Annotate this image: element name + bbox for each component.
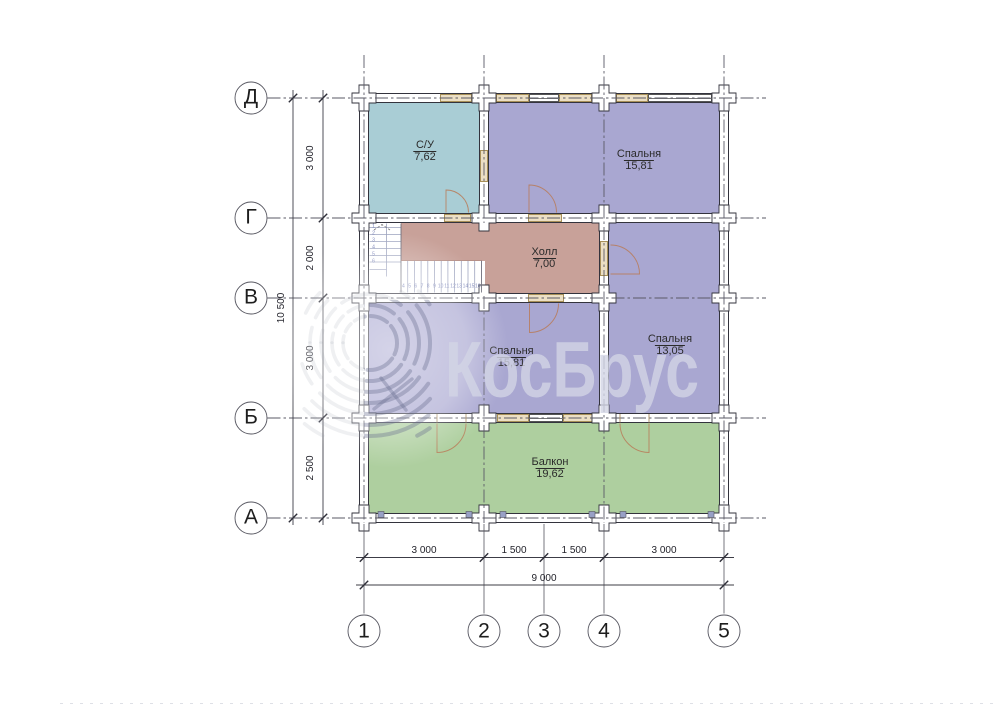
svg-text:КосБрус: КосБрус [445, 325, 699, 414]
